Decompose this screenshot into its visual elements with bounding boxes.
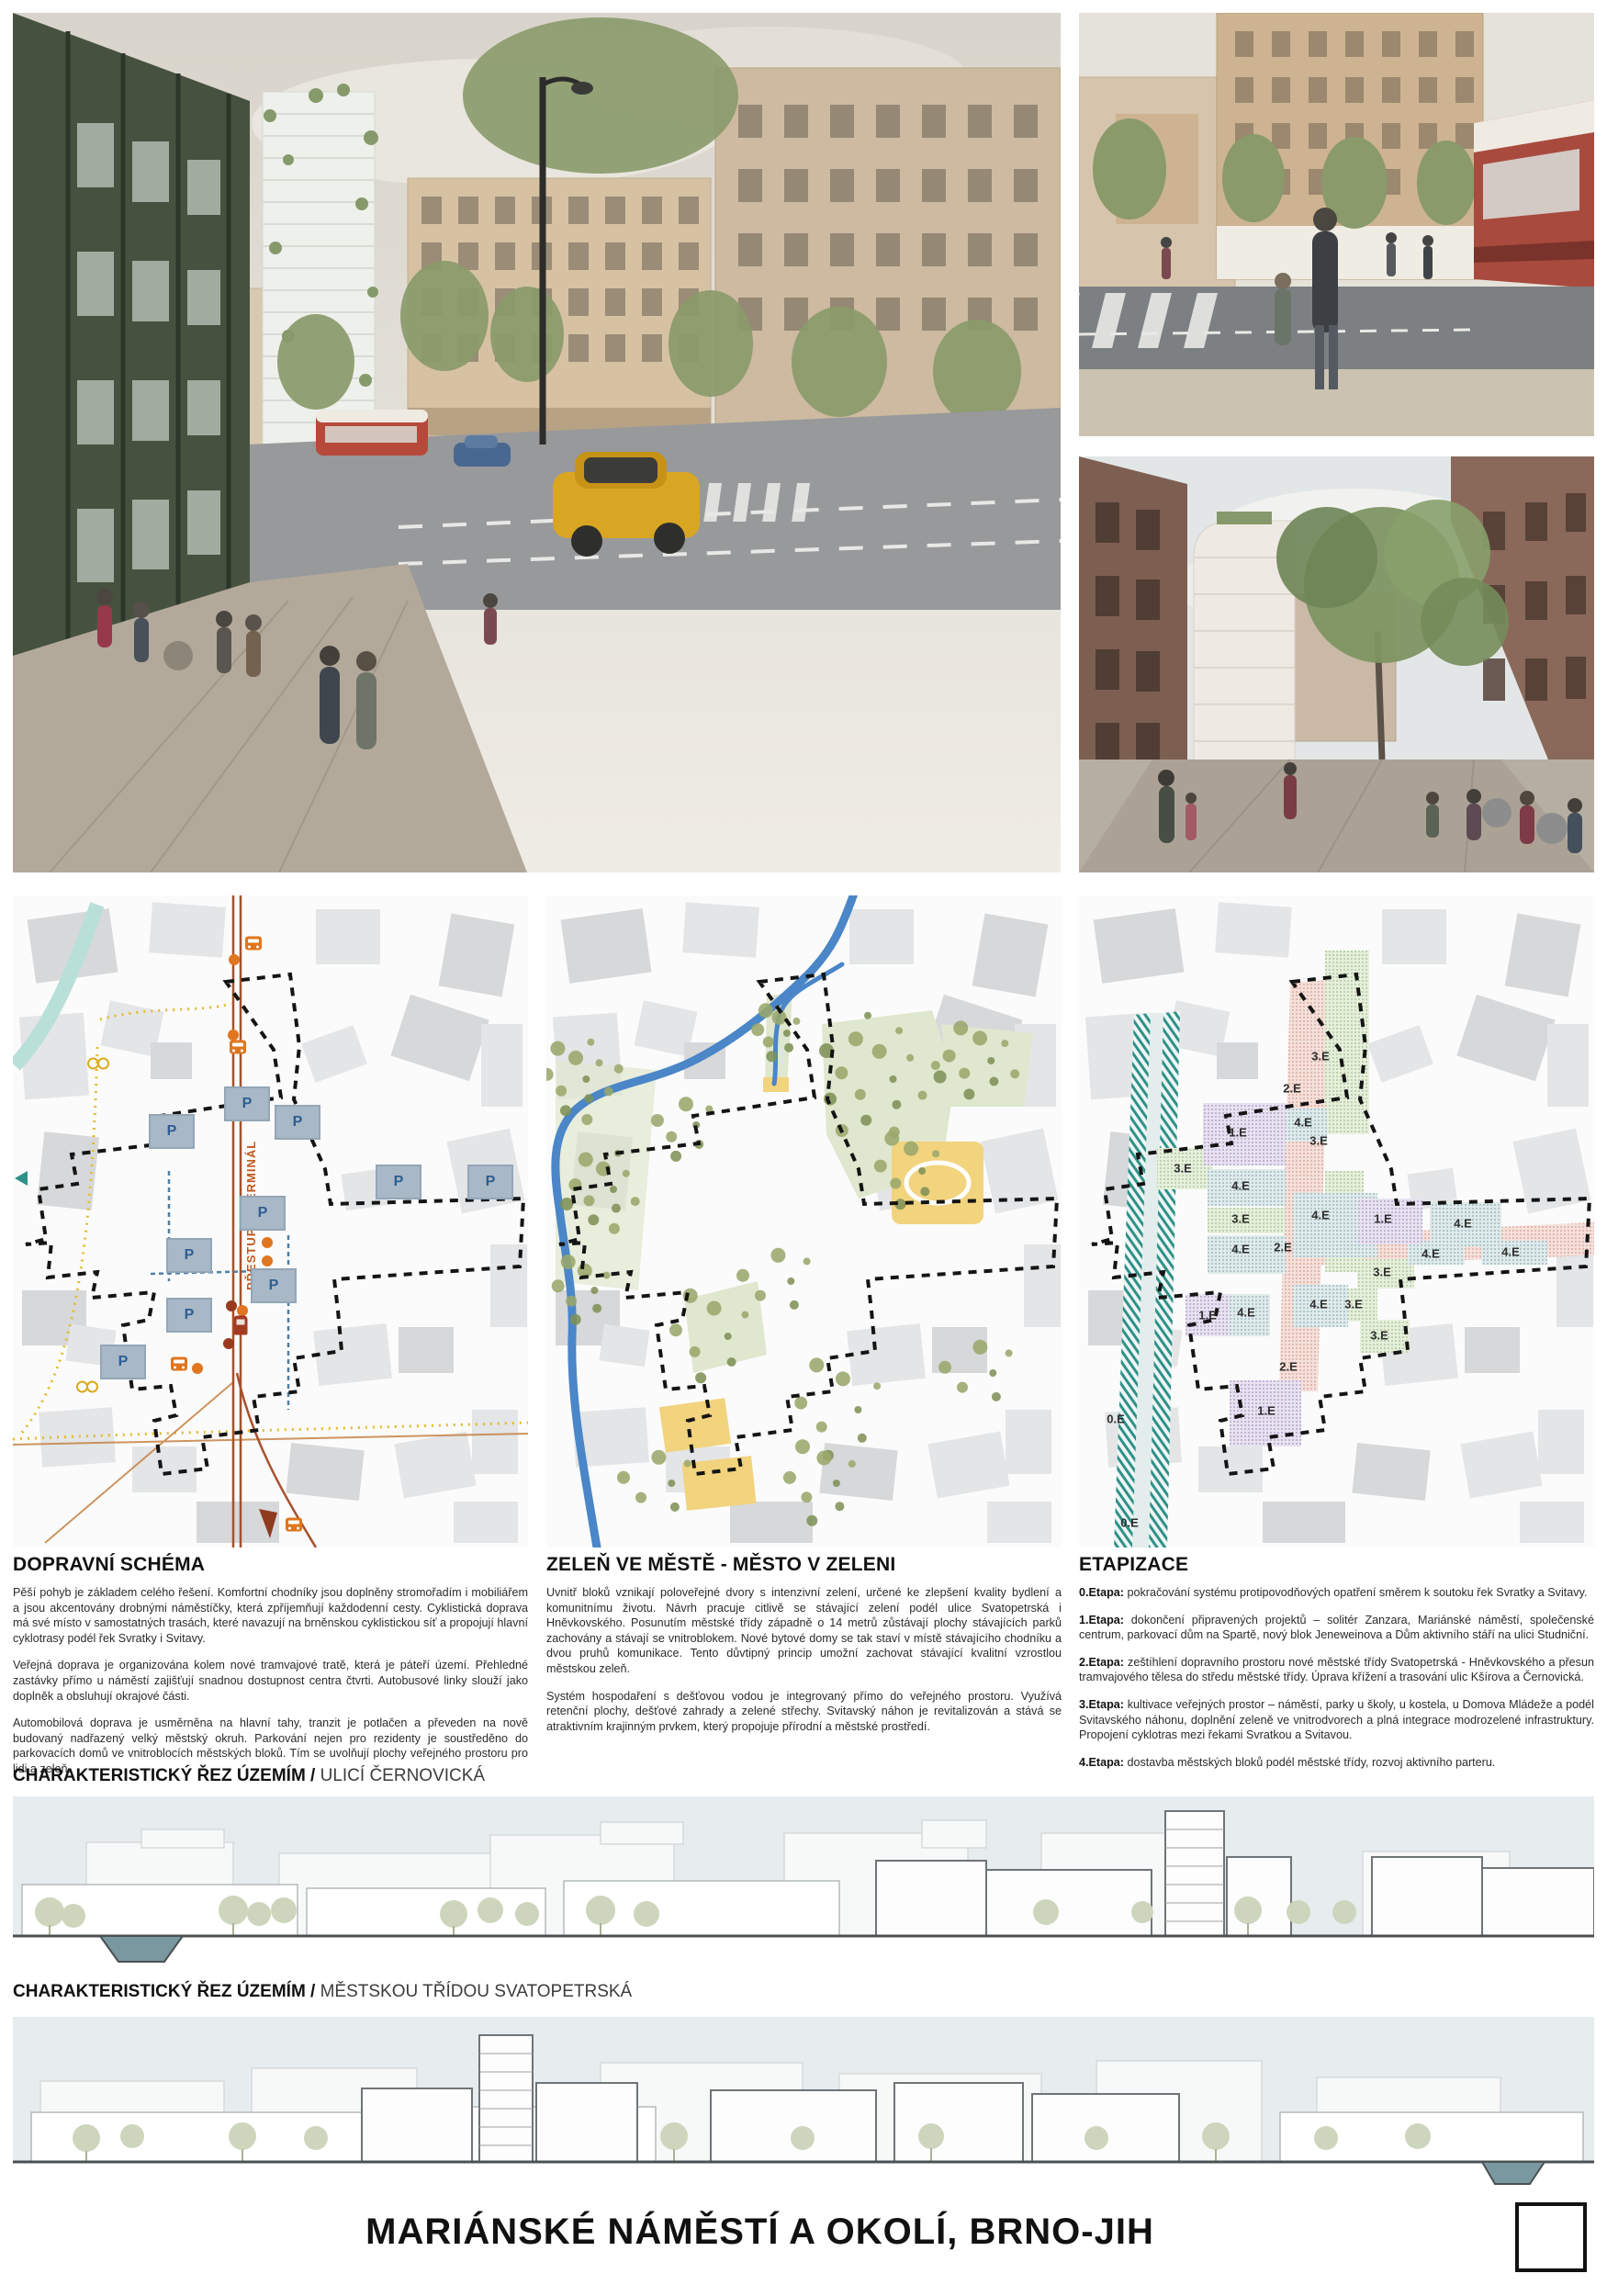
- phase-label-4e: 4.E: [1231, 1179, 1250, 1193]
- river-channel: [100, 1936, 183, 1962]
- parking-house-marker: P: [166, 1238, 212, 1273]
- transit-stop-dot: [228, 1030, 239, 1041]
- phase-label-0e: 0.E: [1120, 1516, 1139, 1530]
- phase-label-4e: 4.E: [1309, 1298, 1328, 1311]
- transit-stop-dot: [226, 1300, 237, 1311]
- transport-map-overlay: PŘESTUPNÍ TERMINÁL PPPPPPPPPP: [13, 895, 528, 1548]
- bicycle-icon: [76, 1381, 98, 1393]
- phase-label-1e: 1.E: [1374, 1212, 1392, 1226]
- column-heading: ETAPIZACE: [1079, 1554, 1594, 1576]
- stage-paragraph: 0.Etapa: pokračování systému protipovodň…: [1079, 1585, 1594, 1601]
- phase-label-3e: 3.E: [1174, 1162, 1192, 1176]
- phase-label-2e: 2.E: [1279, 1360, 1298, 1374]
- phasing-map-overlay: 3.E2.E4.E1.E3.E3.E4.E3.E4.E1.E4.E4.E2.E4…: [1079, 895, 1594, 1548]
- transit-stop-dot: [237, 1305, 248, 1316]
- section-heading-svatopetrska: CHARAKTERISTICKÝ ŘEZ ÚZEMÍM / MĚSTSKOU T…: [13, 1982, 632, 2002]
- phase-label-4e: 4.E: [1237, 1306, 1255, 1320]
- map-phasing: 3.E2.E4.E1.E3.E3.E4.E3.E4.E1.E4.E4.E2.E4…: [1079, 895, 1594, 1548]
- phase-label-4e: 4.E: [1422, 1247, 1440, 1261]
- phase-label-3e: 3.E: [1311, 1050, 1330, 1064]
- phase-label-3e: 3.E: [1231, 1212, 1250, 1226]
- phase-label-3e: 3.E: [1344, 1298, 1363, 1311]
- phase-label-1e: 1.E: [1198, 1309, 1217, 1322]
- transit-stop-dot: [262, 1255, 273, 1266]
- panel-title: MARIÁNSKÉ NÁMĚSTÍ A OKOLÍ, BRNO-JIH: [0, 2212, 1520, 2253]
- panel-number-box: [1515, 2202, 1587, 2272]
- paragraph: Systém hospodaření s dešťovou vodou je i…: [546, 1689, 1062, 1735]
- transit-stop-dot: [262, 1237, 273, 1248]
- section-heading-cernovicka: CHARAKTERISTICKÝ ŘEZ ÚZEMÍM / ULICÍ ČERN…: [13, 1766, 485, 1786]
- transit-stop-dot: [192, 1363, 203, 1374]
- phase-label-2e: 2.E: [1274, 1241, 1292, 1255]
- parking-house-marker: P: [166, 1298, 212, 1333]
- main-street-illustration: [13, 13, 1061, 872]
- tram: [1474, 100, 1594, 288]
- tram-icon: [234, 1316, 248, 1335]
- bus-icon: [245, 937, 262, 951]
- rendering-courtyard: [1079, 456, 1594, 872]
- bus-icon: [171, 1357, 187, 1371]
- phase-label-4e: 4.E: [1501, 1245, 1520, 1259]
- map-transport-scheme: PŘESTUPNÍ TERMINÁL PPPPPPPPPP: [13, 895, 528, 1548]
- phase-label-0e: 0.E: [1107, 1412, 1125, 1426]
- parking-house-marker: P: [251, 1268, 297, 1303]
- phase-label-4e: 4.E: [1454, 1217, 1472, 1231]
- bus-icon: [230, 1041, 246, 1054]
- column-heading: ZELEŇ VE MĚSTĚ - MĚSTO V ZELENI: [546, 1554, 1062, 1576]
- column-greenery: ZELEŇ VE MĚSTĚ - MĚSTO V ZELENI Uvnitř b…: [546, 1554, 1062, 1746]
- parking-house-marker: P: [149, 1114, 195, 1149]
- section-drawing-svatopetrska: [13, 2017, 1594, 2199]
- phase-label-4e: 4.E: [1231, 1243, 1250, 1256]
- section-drawing-cernovicka: [13, 1796, 1594, 1973]
- column-transport: DOPRAVNÍ SCHÉMA Pěší pohyb je základem c…: [13, 1554, 528, 1789]
- tram-street-illustration: [1079, 13, 1594, 436]
- phase-label-4e: 4.E: [1294, 1116, 1312, 1130]
- stage-paragraph: 2.Etapa: zeštíhlení dopravního prostoru …: [1079, 1655, 1594, 1685]
- phase-label-2e: 2.E: [1283, 1082, 1301, 1096]
- rendering-tram-street: [1079, 13, 1594, 436]
- phase-label-3e: 3.E: [1309, 1134, 1328, 1148]
- map-green-city: [546, 895, 1062, 1548]
- phase-label-3e: 3.E: [1370, 1329, 1388, 1343]
- parking-house-marker: P: [240, 1196, 286, 1231]
- competition-panel: PŘESTUPNÍ TERMINÁL PPPPPPPPPP: [0, 0, 1607, 2296]
- paragraph: Uvnitř bloků vznikají poloveřejné dvory …: [546, 1585, 1062, 1677]
- parking-house-marker: P: [224, 1086, 270, 1121]
- stage-paragraph: 3.Etapa: kultivace veřejných prostor – n…: [1079, 1697, 1594, 1743]
- river-channel: [1482, 2162, 1545, 2184]
- bus-icon: [286, 1518, 302, 1532]
- title-bar: MARIÁNSKÉ NÁMĚSTÍ A OKOLÍ, BRNO-JIH: [0, 2212, 1520, 2253]
- courtyard-illustration: [1079, 456, 1594, 872]
- midground-buildings: [22, 1881, 839, 1936]
- rendering-main-street: [13, 13, 1061, 872]
- phase-label-1e: 1.E: [1257, 1404, 1275, 1418]
- phase-label-3e: 3.E: [1373, 1266, 1391, 1279]
- stage-paragraph: 1.Etapa: dokončení připravených projektů…: [1079, 1613, 1594, 1643]
- bicycle-icon: [87, 1058, 109, 1070]
- phase-label-4e: 4.E: [1311, 1209, 1330, 1222]
- parking-house-marker: P: [376, 1165, 421, 1199]
- paragraph: Veřejná doprava je organizována kolem no…: [13, 1658, 528, 1704]
- parking-house-marker: P: [100, 1345, 146, 1379]
- parking-house-marker: P: [467, 1165, 513, 1199]
- transit-stop-dot: [223, 1338, 234, 1349]
- column-phasing: ETAPIZACE 0.Etapa: pokračování systému p…: [1079, 1554, 1594, 1782]
- column-heading: DOPRAVNÍ SCHÉMA: [13, 1554, 528, 1576]
- phase-label-1e: 1.E: [1229, 1126, 1247, 1140]
- parking-house-marker: P: [275, 1105, 320, 1140]
- tram: [316, 410, 428, 456]
- paragraph: Pěší pohyb je základem celého řešení. Ko…: [13, 1585, 528, 1646]
- transit-stop-dot: [229, 954, 240, 965]
- stage-paragraph: 4.Etapa: dostavba městských bloků podél …: [1079, 1755, 1594, 1771]
